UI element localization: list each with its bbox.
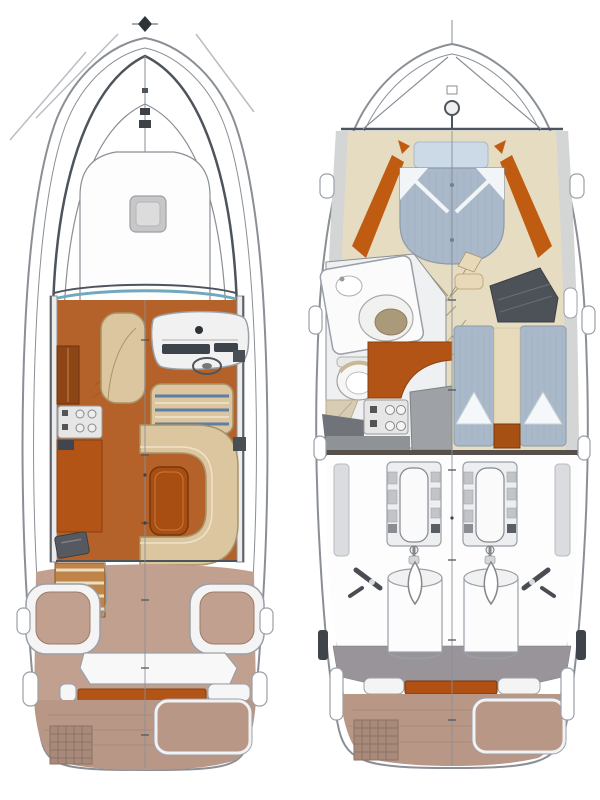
engine-room-bulkhead: [324, 450, 582, 455]
engine-room: [326, 456, 580, 654]
aft-cabin-starboard-berth: [520, 326, 566, 446]
berth-aisle-step: [494, 424, 520, 448]
hull-side-storage: [564, 288, 577, 318]
galley-counter: [410, 386, 452, 450]
starboard-water-tank: [464, 562, 518, 659]
swim-ladder: [354, 720, 398, 760]
instrument-panel: [162, 344, 210, 354]
aft-cabin-port-berth: [454, 326, 494, 446]
deck-plan: [10, 16, 273, 770]
floorplan-canvas: [0, 0, 600, 800]
berth-aisle: [494, 328, 520, 424]
swim-ladder: [50, 726, 92, 764]
chaise-lounge: [101, 313, 145, 403]
deck-hatch: [130, 196, 166, 232]
anchor-roller: [132, 16, 158, 32]
v-berth-pillows: [414, 142, 488, 168]
boat-floorplan-figure: [0, 0, 600, 800]
galley-base-band: [326, 436, 410, 452]
galley-cabinet: [57, 346, 79, 404]
transom-sunpad: [80, 653, 237, 684]
galley-sink-inset: [58, 440, 74, 450]
galley-counter: [57, 440, 102, 532]
cooktop: [58, 406, 102, 438]
port-corner-seat: [26, 584, 100, 654]
port-water-tank: [388, 562, 442, 659]
lower-deck-plan: [309, 20, 595, 768]
platform-hatch: [154, 699, 252, 755]
locker: [455, 274, 483, 289]
helm-console: [152, 312, 249, 374]
frame-fitting-fwd: [233, 350, 245, 362]
galley-cooktop: [364, 400, 408, 434]
frame-fitting-aft: [233, 437, 246, 451]
platform-hatch: [472, 698, 566, 754]
starboard-corner-seat: [190, 584, 264, 654]
compass: [195, 326, 203, 334]
cockpit-table: [150, 467, 188, 535]
